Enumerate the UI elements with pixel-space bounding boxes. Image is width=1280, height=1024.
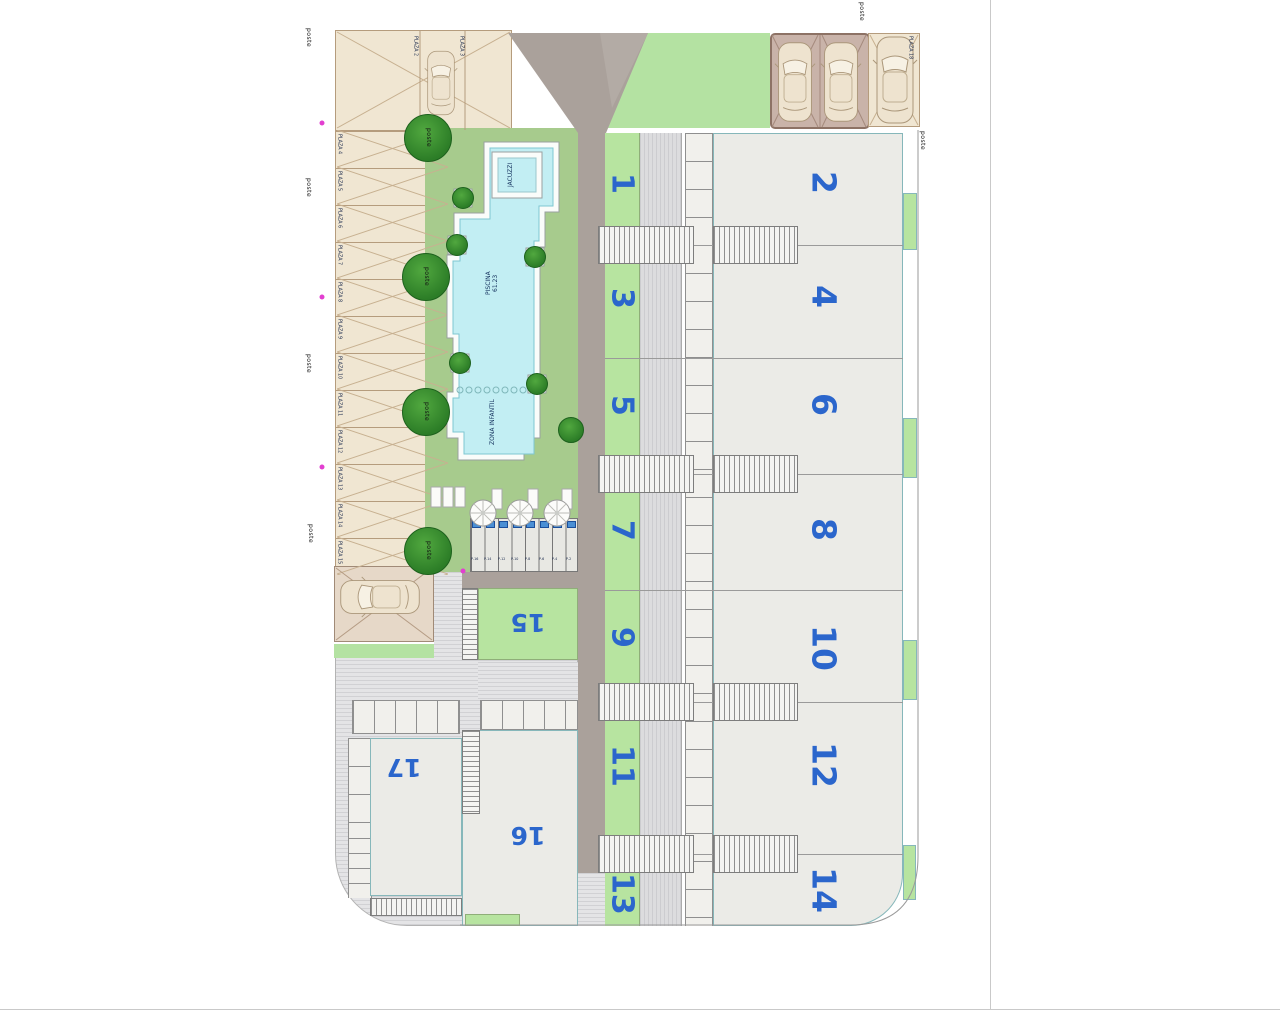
plaza-label: PLAZA 13 (337, 467, 342, 490)
bike-marker-icon (526, 521, 535, 528)
stairs-icon (598, 455, 694, 493)
stairs-icon (370, 898, 462, 916)
sheet-border-vertical (990, 0, 991, 1009)
unit-17-cell-column (348, 738, 372, 838)
tree-icon (558, 417, 584, 443)
unit-number-1: 1 (604, 159, 640, 207)
poste-label: poste (307, 524, 313, 543)
bike-marker-icon (567, 521, 576, 528)
unit-number-14: 14 (798, 857, 850, 923)
bike-marker-icon (553, 521, 562, 528)
bay-label: P-10 (511, 558, 518, 561)
paving-below-walkway (578, 873, 605, 926)
carport-bottomleft (334, 566, 434, 642)
poste-label: poste (425, 541, 431, 560)
poste-label: poste (423, 402, 429, 421)
bay-label: P-8 (525, 558, 530, 561)
bike-marker-icon (513, 521, 522, 528)
stairs-icon (713, 835, 798, 873)
bike-marker-icon (499, 521, 508, 528)
unit-number-6: 6 (798, 378, 850, 430)
poste-label: poste (423, 267, 429, 286)
unit-16-cell-row (480, 700, 578, 730)
unit-16-garden-strip (465, 914, 520, 926)
tree-icon: poste (402, 253, 450, 301)
unit-number-13: 13 (604, 863, 640, 925)
jacuzzi-label: JACUZZI (508, 154, 522, 196)
plaza-label: PLAZA 3 (459, 36, 464, 56)
stairs-icon (462, 588, 478, 660)
unit-number-10: 10 (798, 615, 850, 681)
plaza-label: PLAZA 15 (337, 541, 342, 564)
plaza-label: PLAZA 14 (337, 504, 342, 527)
plaza-label: PLAZA 18 (908, 36, 913, 59)
tree-icon: poste (404, 114, 452, 162)
unit-17-cell-column-lower (348, 838, 372, 898)
unit-number-4: 4 (798, 270, 850, 322)
plaza-label: PLAZA 10 (337, 356, 342, 379)
unit-number-12: 12 (798, 732, 850, 798)
poste-label: poste (305, 178, 311, 197)
poste-label: poste (858, 2, 864, 21)
poste-label: poste (305, 28, 311, 47)
plaza-label: PLAZA 8 (337, 282, 342, 302)
bike-marker-icon (486, 521, 495, 528)
plaza-label: PLAZA 9 (337, 319, 342, 339)
plaza-label: PLAZA 5 (337, 171, 342, 191)
sheet-border-horizontal (0, 1009, 1280, 1010)
unit-number-16: 16 (504, 820, 552, 852)
tree-icon: poste (404, 527, 452, 575)
carport-topright-canopy (770, 33, 870, 129)
tree-icon (452, 187, 474, 209)
poste-label: poste (305, 354, 311, 373)
bike-marker-icon (540, 521, 549, 528)
plaza-label: PLAZA 2 (413, 36, 418, 56)
stairs-icon (462, 730, 480, 814)
unit-17-cell-row (352, 700, 460, 734)
piscina-area: 61.23 (492, 274, 499, 291)
plaza-label: PLAZA 11 (337, 393, 342, 416)
unit-number-3: 3 (604, 274, 640, 322)
zona-infantil-label: ZONA INFANTIL (490, 396, 504, 448)
unit-15-terrace (478, 662, 578, 700)
unit-number-17: 17 (380, 752, 428, 784)
site-plan: P-16 P-14 P-12 P-10 P-8 P-6 P-4 P-2 (0, 0, 1280, 1024)
unit-number-2: 2 (798, 156, 850, 208)
poste-label: poste (425, 128, 431, 147)
tree-icon (526, 373, 548, 395)
tree-icon: poste (402, 388, 450, 436)
unit-number-7: 7 (604, 506, 640, 554)
row-divider (605, 590, 903, 591)
bay-label: P-4 (552, 558, 557, 561)
right-garden-sliver-4 (903, 845, 916, 900)
bike-marker-icon (472, 521, 481, 528)
right-garden-sliver-1 (903, 193, 917, 250)
stairs-icon (598, 226, 694, 264)
right-garden-sliver-3 (903, 640, 917, 700)
bay-label: P-12 (498, 558, 505, 561)
plaza-label: PLAZA 7 (337, 245, 342, 265)
tree-icon (446, 234, 468, 256)
unit-number-8: 8 (798, 503, 850, 555)
unit-number-15: 15 (504, 607, 552, 639)
right-garden-sliver-2 (903, 418, 917, 478)
piscina-label: PISCINA 61.23 (486, 260, 506, 306)
plaza-label: PLAZA 12 (337, 430, 342, 453)
top-lawn (605, 33, 770, 128)
poste-label: poste (919, 131, 925, 150)
bay-label: P-16 (471, 558, 478, 561)
stairs-icon (598, 683, 694, 721)
pool-garden (425, 128, 578, 572)
tree-icon (449, 352, 471, 374)
row-divider (605, 358, 903, 359)
unit-number-9: 9 (604, 613, 640, 661)
stairs-icon (713, 226, 798, 264)
walkway-connector (455, 572, 605, 588)
plaza-label: PLAZA 4 (337, 134, 342, 154)
paving-mid-left (434, 572, 462, 658)
lawn-bottomleft (334, 644, 434, 658)
unit-number-5: 5 (604, 381, 640, 429)
stairs-icon (713, 455, 798, 493)
tree-icon (524, 246, 546, 268)
stairs-icon (713, 683, 798, 721)
bay-label: P-14 (484, 558, 491, 561)
bay-label: P-2 (566, 558, 571, 561)
unit-number-11: 11 (604, 735, 640, 797)
bay-label: P-6 (539, 558, 544, 561)
plaza-label: PLAZA 6 (337, 208, 342, 228)
